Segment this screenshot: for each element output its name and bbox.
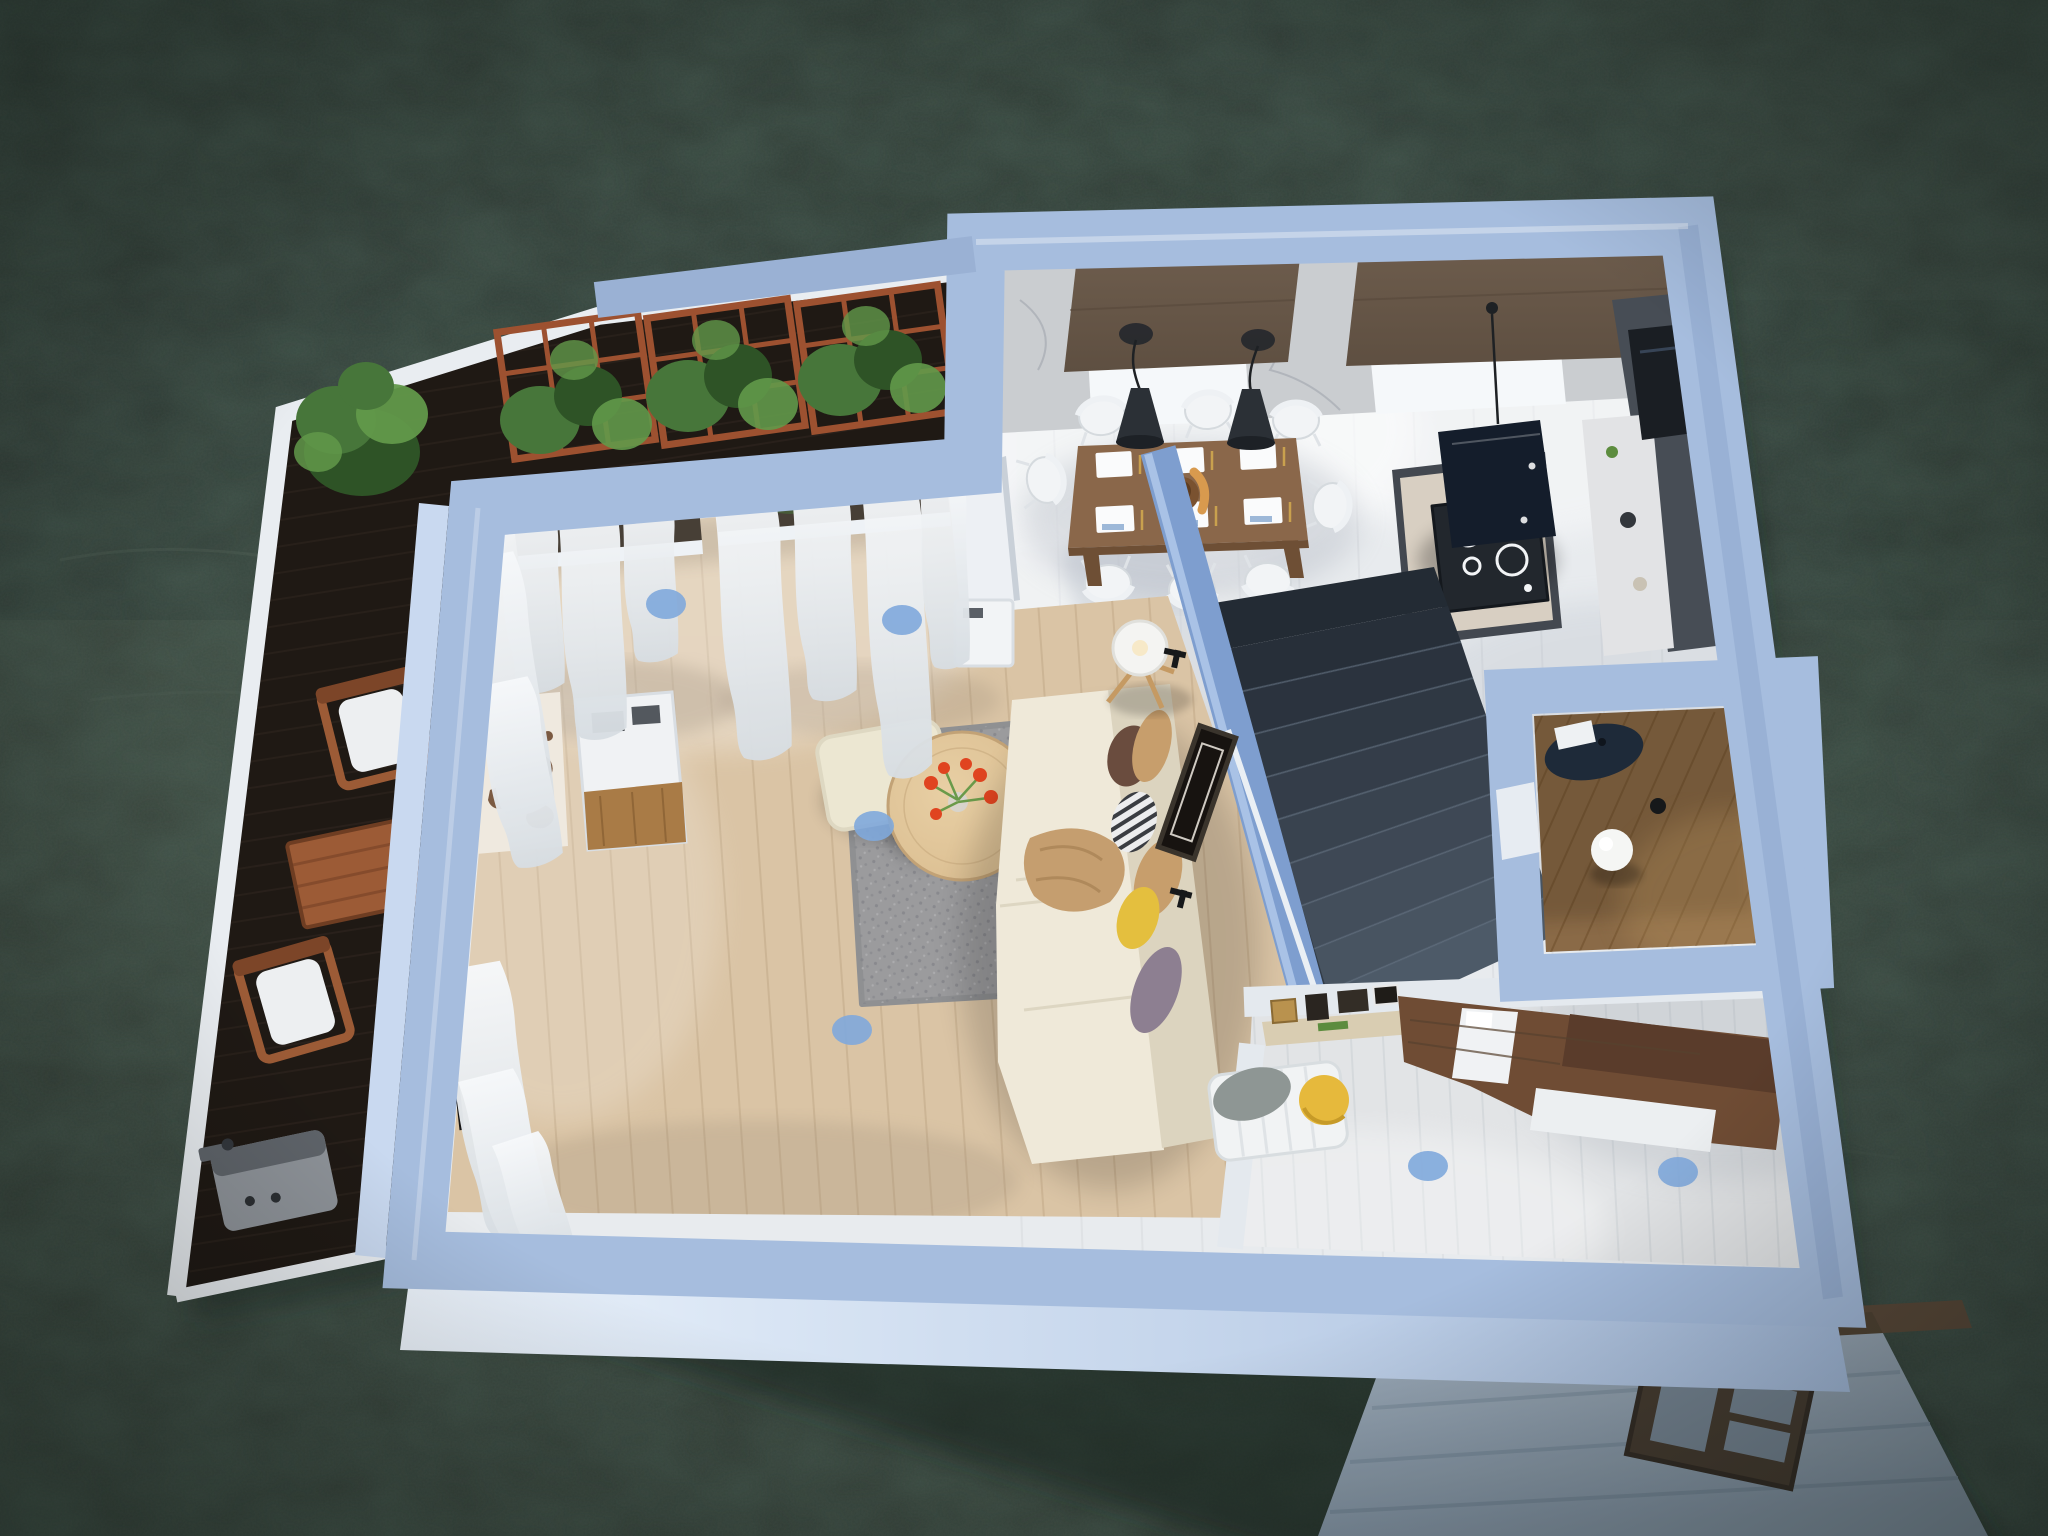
floorplan-render-viewport <box>0 0 2048 1536</box>
vignette-overlay <box>0 0 2048 1536</box>
scene-canvas <box>0 0 2048 1536</box>
